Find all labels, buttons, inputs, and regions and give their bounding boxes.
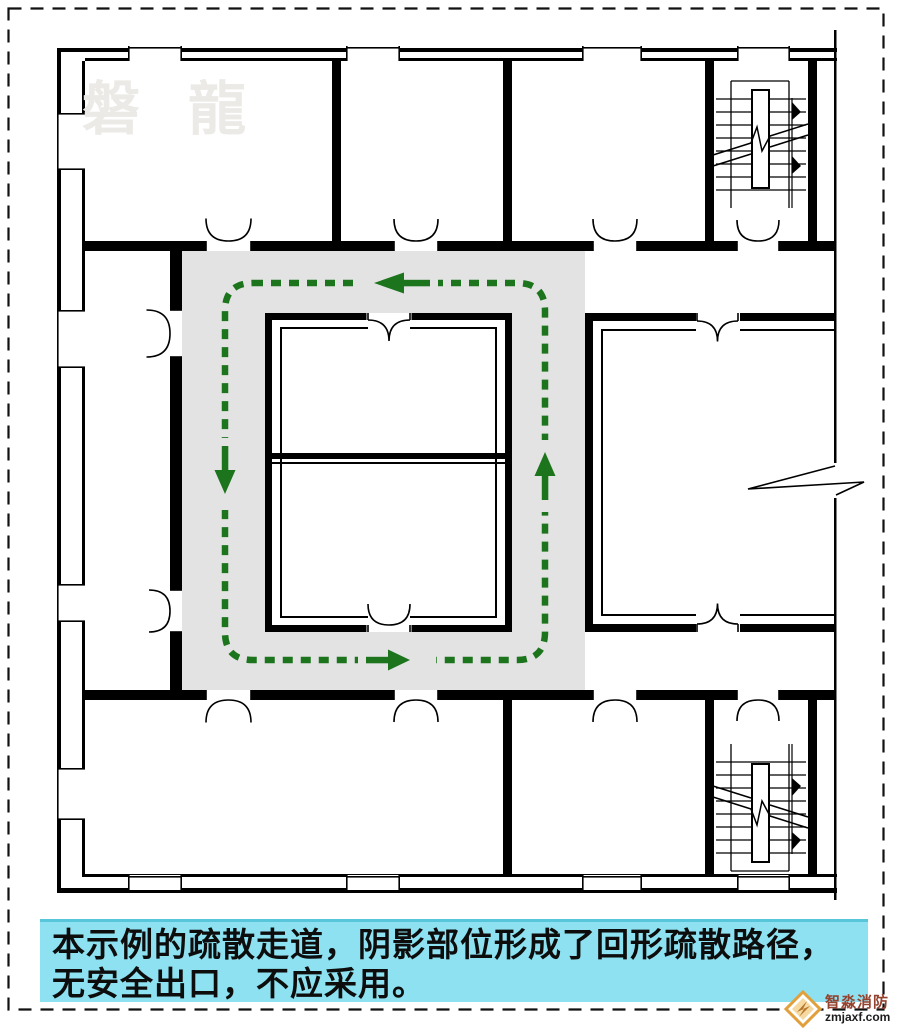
partition-wall-bottom-band xyxy=(705,700,714,877)
window-opening xyxy=(57,768,85,820)
logo-name: 智淼消防 xyxy=(825,994,890,1011)
corridor-wall-top xyxy=(438,241,593,251)
corridor-wall-bottom xyxy=(251,690,394,700)
caption-band: 本示例的疏散走道，阴影部位形成了回形疏散路径， 无安全出口，不应采用。 xyxy=(40,919,868,1002)
corridor-wall-top xyxy=(779,241,835,251)
floor-plan-drawing xyxy=(0,0,908,1032)
corridor-wall-bottom xyxy=(85,690,206,700)
door-swing xyxy=(737,700,779,721)
route-arrow-down xyxy=(222,446,229,470)
partition-wall-top-band xyxy=(503,61,512,241)
corridor-wall-top xyxy=(637,241,737,251)
logo-text: 智淼消防 zmjaxf.com xyxy=(825,994,890,1024)
partition-wall-bottom-band xyxy=(808,700,817,877)
corridor-wall-top xyxy=(85,241,206,251)
right-room-wall-left xyxy=(585,313,593,632)
window-opening xyxy=(57,310,85,368)
partition-wall-top-band xyxy=(705,61,714,241)
inner-block-divider-wall xyxy=(272,453,505,459)
door-swing xyxy=(206,700,251,723)
corridor-wall-bottom xyxy=(637,690,737,700)
exterior-wall-top-inner xyxy=(85,58,837,61)
inner-block-wall-top xyxy=(265,313,367,320)
partition-wall-bottom-band xyxy=(503,700,512,877)
door-swing xyxy=(394,700,438,722)
left-rooms-wall xyxy=(170,251,182,310)
window-opening xyxy=(57,584,85,622)
partition-wall-top-band xyxy=(808,61,817,241)
right-room-wall-bottom xyxy=(585,624,696,632)
door-swing xyxy=(394,219,438,241)
route-arrow-up xyxy=(542,476,549,500)
inner-block-wall-bottom xyxy=(265,625,367,632)
door-swing xyxy=(593,219,637,241)
site-logo: 智淼消防 zmjaxf.com xyxy=(783,989,890,1029)
staircase-bottom-right xyxy=(713,744,808,871)
left-rooms-wall xyxy=(170,632,182,690)
inner-block-wall-right xyxy=(505,313,512,632)
staircase-top-right xyxy=(713,81,808,208)
page: { "meta": { "type": "architectural-evacu… xyxy=(0,0,908,1032)
door-swing xyxy=(697,604,738,625)
corridor-wall-bottom xyxy=(779,690,835,700)
window-opening xyxy=(57,113,85,170)
inner-block-wall-left xyxy=(265,313,272,632)
corridor-wall-top xyxy=(251,241,394,251)
route-arrow-right xyxy=(366,657,388,664)
exterior-wall-bottom-inner xyxy=(85,874,837,877)
right-room-wall-top xyxy=(585,313,696,321)
door-swing xyxy=(206,219,251,242)
inner-block-wall-bottom xyxy=(412,625,513,632)
door-swing xyxy=(593,700,637,722)
door-swing xyxy=(149,590,170,632)
inner-room-block-area xyxy=(265,313,512,632)
left-rooms-wall xyxy=(170,357,182,590)
diamond-bolt-icon xyxy=(783,989,823,1029)
corridor-wall-bottom xyxy=(438,690,593,700)
right-room-wall-top xyxy=(740,313,835,321)
exterior-wall-left-outer xyxy=(57,48,61,893)
inner-block-wall-top xyxy=(412,313,513,320)
watermark-text: 磐 龍 xyxy=(82,62,262,146)
exterior-wall-left-inner xyxy=(82,61,85,877)
door-swing xyxy=(147,310,171,357)
right-room-wall-bottom xyxy=(740,624,835,632)
caption-line-1: 本示例的疏散走道，阴影部位形成了回形疏散路径， xyxy=(52,925,868,964)
logo-domain: zmjaxf.com xyxy=(825,1011,890,1024)
door-swing xyxy=(737,220,779,241)
door-swing xyxy=(697,321,738,342)
route-arrow-left xyxy=(404,280,430,287)
caption-line-2: 无安全出口，不应采用。 xyxy=(52,964,868,1003)
wall-break-symbol xyxy=(748,466,864,495)
partition-wall-top-band xyxy=(332,61,341,241)
